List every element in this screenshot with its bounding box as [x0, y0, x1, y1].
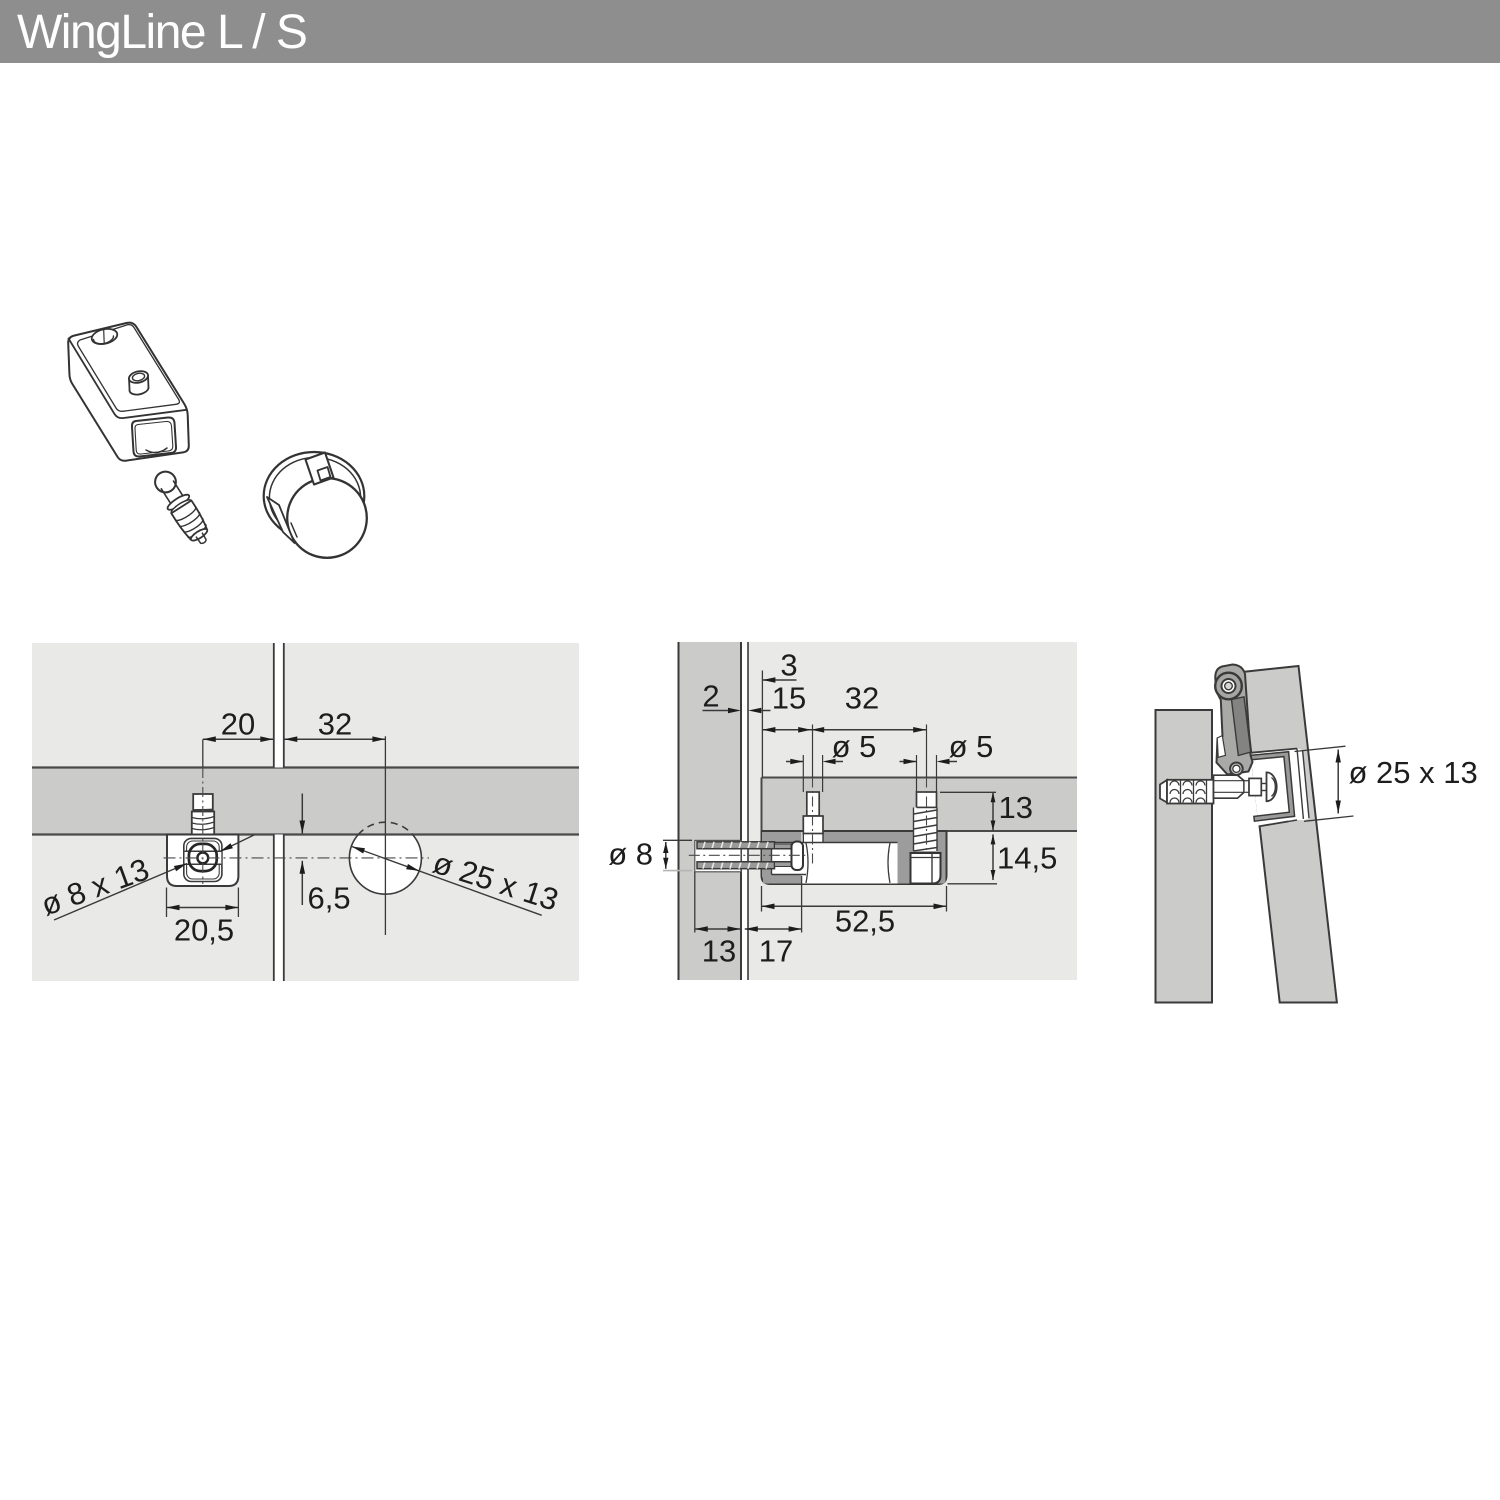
svg-text:2: 2	[702, 679, 719, 714]
svg-text:32: 32	[845, 681, 879, 716]
svg-text:20: 20	[221, 707, 255, 742]
svg-text:ø 5: ø 5	[949, 729, 994, 764]
svg-text:6,5: 6,5	[308, 881, 351, 916]
svg-text:13: 13	[702, 934, 736, 969]
svg-text:32: 32	[318, 707, 352, 742]
svg-text:52,5: 52,5	[835, 904, 895, 939]
svg-text:ø 5: ø 5	[832, 729, 877, 764]
svg-text:20,5: 20,5	[174, 913, 234, 948]
svg-text:ø 8: ø 8	[608, 837, 653, 872]
svg-text:15: 15	[772, 681, 806, 716]
svg-text:13: 13	[999, 790, 1033, 825]
svg-text:17: 17	[759, 934, 793, 969]
svg-text:14,5: 14,5	[997, 841, 1057, 876]
svg-text:ø 25 x 13: ø 25 x 13	[1349, 755, 1478, 790]
svg-text:3: 3	[780, 648, 797, 683]
